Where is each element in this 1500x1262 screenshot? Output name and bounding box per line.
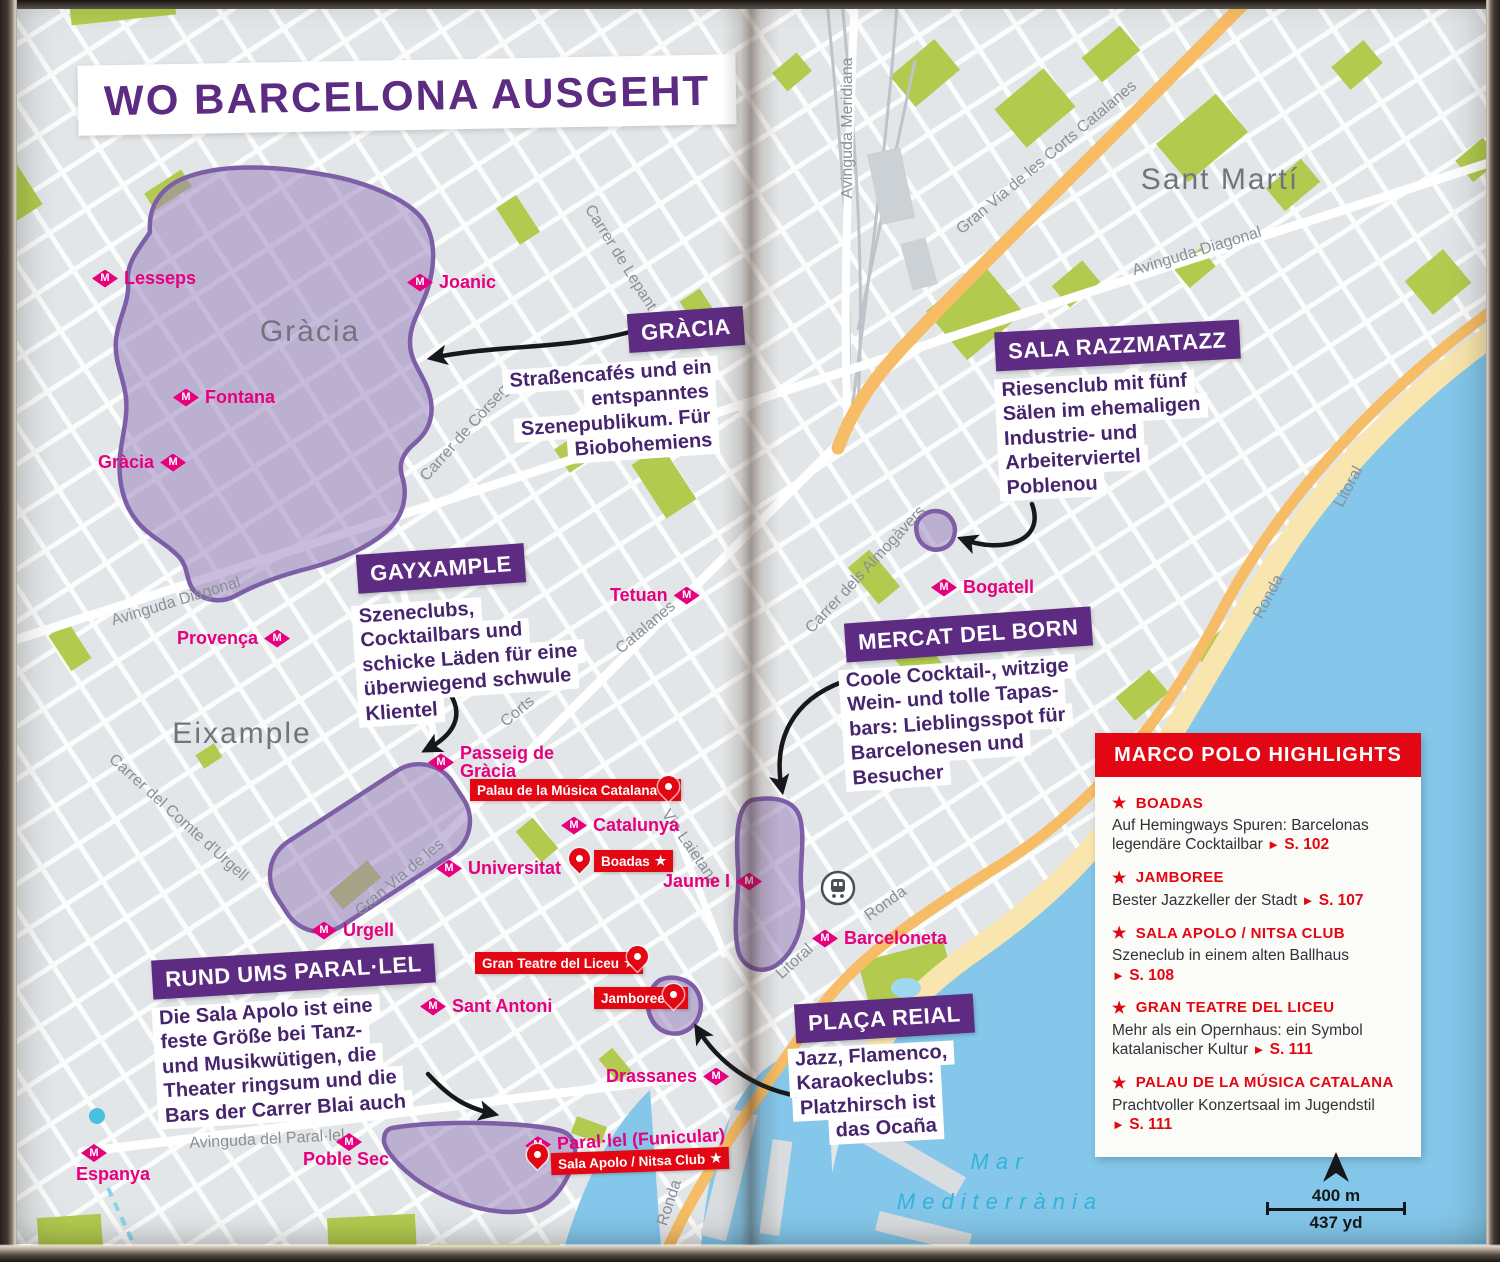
highlight-title: ★ GRAN TEATRE DEL LICEU xyxy=(1112,998,1404,1018)
metro-label: Passeig de Gràcia xyxy=(460,744,554,781)
metro-label: Catalunya xyxy=(593,815,679,836)
metro-label: Poble Sec xyxy=(303,1149,389,1170)
page-title: WO BARCELONA AUSGEHT xyxy=(77,54,736,135)
star-icon: ★ xyxy=(1112,793,1127,813)
highlights-header: MARCO POLO HIGHLIGHTS xyxy=(1095,733,1421,777)
metro-icon: M xyxy=(428,753,454,771)
highlight-title: ★ SALA APOLO / NITSA CLUB xyxy=(1112,923,1404,943)
star-icon: ★ xyxy=(1112,998,1127,1018)
highlight-item-palau-musica: ★ PALAU DE LA MÚSICA CATALANA Prachtvoll… xyxy=(1112,1073,1404,1135)
metro-station-urgell: M Urgell xyxy=(311,920,394,941)
metro-station-universitat: M Universitat xyxy=(436,858,561,879)
book-edge-top xyxy=(0,0,1500,9)
metro-label: Sant Antoni xyxy=(452,996,552,1017)
book-gutter xyxy=(722,9,780,1248)
star-icon: ★ xyxy=(710,1150,722,1166)
callout-desc-razzmatazz: Riesenclub mit fünf Sälen im ehemaligen … xyxy=(994,369,1212,502)
arrow-icon: ► xyxy=(1112,968,1125,983)
highlight-text: Szeneclub in einem alten Ballhaus xyxy=(1112,947,1349,964)
metro-label: Drassanes xyxy=(606,1066,697,1087)
metro-label: Lesseps xyxy=(124,268,196,289)
metro-icon: M xyxy=(436,860,462,878)
metro-station-espanya: Espanya xyxy=(76,1164,150,1185)
highlight-text: Prachtvoller Konzertsaal im Jugendstil xyxy=(1112,1097,1375,1114)
highlight-desc: Auf Hemingways Spuren: Barcelonas legend… xyxy=(1112,816,1404,855)
poi-box-boadas: Boadas ★ xyxy=(594,850,673,872)
guidebook-spread: Avinguda Meridiana Gran Via de les Corts… xyxy=(0,0,1500,1262)
highlight-title: ★ BOADAS xyxy=(1112,793,1404,813)
page-number: S. 102 xyxy=(1284,836,1329,853)
poi-label: Boadas xyxy=(601,854,650,869)
metro-icon: M xyxy=(160,454,186,472)
highlight-name: JAMBOREE xyxy=(1136,869,1224,886)
metro-label: Gràcia xyxy=(98,452,154,473)
highlight-title: ★ PALAU DE LA MÚSICA CATALANA xyxy=(1112,1073,1404,1093)
page-number: S. 107 xyxy=(1319,892,1364,909)
metro-icon: M xyxy=(407,274,433,292)
park-pond xyxy=(891,978,921,998)
highlight-desc: Szeneclub in einem alten Ballhaus ► S. 1… xyxy=(1112,946,1404,985)
star-icon: ★ xyxy=(655,853,667,869)
highlights-box: MARCO POLO HIGHLIGHTS ★ BOADAS Auf Hemin… xyxy=(1095,733,1421,1157)
page-reference: ► S. 107 xyxy=(1302,892,1364,909)
metro-label: Tetuan xyxy=(610,585,668,606)
arrow-icon: ► xyxy=(1267,837,1280,852)
metro-label: Barceloneta xyxy=(844,928,947,949)
page-number: S. 111 xyxy=(1129,1116,1172,1133)
poi-label: Jamboree xyxy=(601,991,665,1006)
highlight-text: Bester Jazzkeller der Stadt xyxy=(1112,892,1297,909)
book-edge-left xyxy=(0,0,17,1262)
north-arrow-icon xyxy=(1323,1152,1349,1182)
metro-label: Espanya xyxy=(76,1164,150,1185)
metro-station-barceloneta: M Barceloneta xyxy=(812,928,947,949)
highlight-name: BOADAS xyxy=(1136,795,1203,812)
metro-station-bogatell: M Bogatell xyxy=(931,577,1034,598)
highlight-desc: Prachtvoller Konzertsaal im Jugendstil ►… xyxy=(1112,1096,1404,1135)
metro-station-lesseps: M Lesseps xyxy=(92,268,196,289)
sea-label: Mar Mediterrània xyxy=(880,1142,1120,1221)
callout-desc-gracia: Straßencafés und ein entspanntes Szenepu… xyxy=(502,356,720,468)
train-station-icon xyxy=(822,872,854,904)
poi-box-liceu: Gran Teatre del Liceu ★ xyxy=(475,952,643,974)
metro-label: Fontana xyxy=(205,387,275,408)
callout-desc-rund-ums-parallel: Die Sala Apolo ist eine feste Größe bei … xyxy=(152,992,414,1129)
star-icon: ★ xyxy=(1112,868,1127,888)
district-label-eixample: Eixample xyxy=(172,717,311,751)
poi-label: Gran Teatre del Liceu xyxy=(482,956,619,971)
metro-icon: M xyxy=(561,817,587,835)
page-reference: ► S. 111 xyxy=(1112,1116,1172,1133)
poi-label: Sala Apolo / Nitsa Club xyxy=(558,1151,706,1171)
highlight-item-sala-apolo: ★ SALA APOLO / NITSA CLUB Szeneclub in e… xyxy=(1112,923,1404,985)
street-label-meridiana: Avinguda Meridiana xyxy=(839,57,857,198)
metro-icon: M xyxy=(420,998,446,1016)
page-reference: ► S. 111 xyxy=(1252,1041,1312,1058)
page-reference: ► S. 108 xyxy=(1112,967,1174,984)
book-edge-bottom xyxy=(0,1244,1500,1262)
metro-icon: M xyxy=(674,587,700,605)
callout-desc-placa-reial: Jazz, Flamenco, Karaokeclubs: Platzhirsc… xyxy=(788,1041,945,1146)
metro-label: Provença xyxy=(177,628,258,649)
metro-station-tetuan: Tetuan M xyxy=(610,585,700,606)
metro-station-provenca: Provença M xyxy=(177,628,290,649)
sea-label-line1: Mar xyxy=(880,1142,1120,1182)
poi-label: Palau de la Música Catalana xyxy=(477,783,657,798)
scale-imperial: 437 yd xyxy=(1262,1213,1410,1233)
page-number: S. 108 xyxy=(1129,967,1174,984)
metro-station-fontana: M Fontana xyxy=(173,387,275,408)
highlights-body: ★ BOADAS Auf Hemingways Spuren: Barcelon… xyxy=(1095,777,1421,1157)
metro-label: Bogatell xyxy=(963,577,1034,598)
callout-desc-mercat-del-born: Coole Cocktail-, witzige Wein- und tolle… xyxy=(838,654,1083,792)
arrow-icon: ► xyxy=(1112,1117,1125,1132)
metro-station-drassanes: Drassanes M xyxy=(606,1066,729,1087)
metro-station-joanic: M Joanic xyxy=(407,272,496,293)
metro-station-sant-antoni: M Sant Antoni xyxy=(420,996,552,1017)
sea-label-line2: Mediterrània xyxy=(880,1182,1120,1222)
metro-icon: M xyxy=(92,270,118,288)
metro-icon: M xyxy=(311,922,337,940)
highlight-text: Mehr als ein Opernhaus: ein Symbol katal… xyxy=(1112,1022,1363,1058)
scale-line xyxy=(1266,1208,1406,1211)
metro-icon: M xyxy=(812,930,838,948)
star-icon: ★ xyxy=(1112,1073,1127,1093)
metro-label: Jaume I xyxy=(663,871,730,892)
metro-icon: M xyxy=(264,630,290,648)
highlight-text: Auf Hemingways Spuren: Barcelonas legend… xyxy=(1112,817,1369,853)
metro-icon: M xyxy=(931,579,957,597)
highlight-name: GRAN TEATRE DEL LICEU xyxy=(1136,999,1335,1016)
highlight-name: PALAU DE LA MÚSICA CATALANA xyxy=(1136,1074,1394,1091)
highlight-desc: Bester Jazzkeller der Stadt ► S. 107 xyxy=(1112,891,1404,910)
page-reference: ► S. 102 xyxy=(1267,836,1329,853)
plaza-fountain-icon xyxy=(89,1108,105,1124)
metro-station-gracia: Gràcia M xyxy=(98,452,186,473)
highlight-desc: Mehr als ein Opernhaus: ein Symbol katal… xyxy=(1112,1021,1404,1060)
highlight-item-jamboree: ★ JAMBOREE Bester Jazzkeller der Stadt ►… xyxy=(1112,868,1404,910)
metro-label: Urgell xyxy=(343,920,394,941)
metro-icon: M xyxy=(173,389,199,407)
arrow-icon: ► xyxy=(1252,1042,1265,1057)
arrow-icon: ► xyxy=(1302,893,1315,908)
book-edge-right xyxy=(1486,0,1500,1262)
highlight-name: SALA APOLO / NITSA CLUB xyxy=(1136,925,1345,942)
highlight-item-boadas: ★ BOADAS Auf Hemingways Spuren: Barcelon… xyxy=(1112,793,1404,855)
callout-desc-gayxample: Szeneclubs, Cocktailbars und schicke Läd… xyxy=(351,590,589,728)
district-label-sant-marti: Sant Martí xyxy=(1141,163,1299,197)
highlight-item-liceu: ★ GRAN TEATRE DEL LICEU Mehr als ein Ope… xyxy=(1112,998,1404,1060)
star-icon: ★ xyxy=(1112,923,1127,943)
poi-box-palau-musica: Palau de la Música Catalana ★ xyxy=(470,779,681,801)
page-number: S. 111 xyxy=(1270,1041,1313,1058)
metro-label: Universitat xyxy=(468,858,561,879)
district-label-gracia: Gràcia xyxy=(260,315,360,349)
metro-station-catalunya: M Catalunya xyxy=(561,815,679,836)
scale-bar: 400 m 437 yd xyxy=(1262,1152,1410,1233)
metro-station-passeig-de-gracia: M Passeig de Gràcia xyxy=(428,744,554,781)
highlight-title: ★ JAMBOREE xyxy=(1112,868,1404,888)
metro-station-poble-sec: Poble Sec xyxy=(303,1149,389,1170)
scale-metric: 400 m xyxy=(1262,1186,1410,1206)
metro-label: Joanic xyxy=(439,272,496,293)
